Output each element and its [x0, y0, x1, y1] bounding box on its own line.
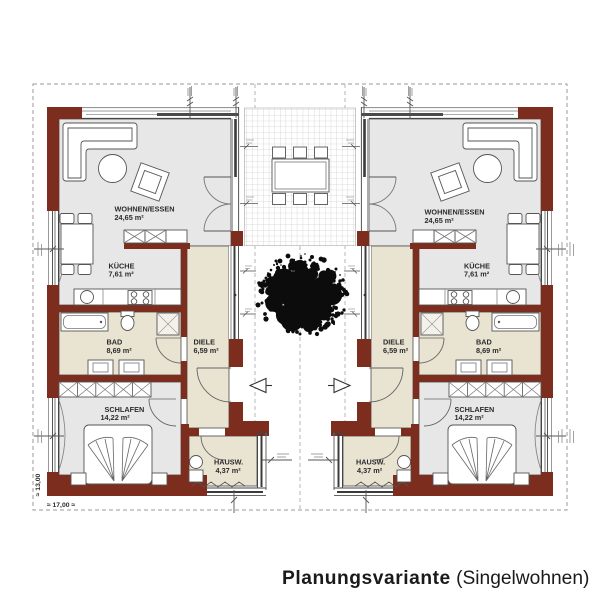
svg-text:24,65 m²: 24,65 m²	[425, 216, 455, 225]
svg-text:4,37 m²: 4,37 m²	[357, 466, 383, 475]
svg-text:≈ 13,00: ≈ 13,00	[35, 473, 42, 496]
svg-text:≈ 17,00 ≈: ≈ 17,00 ≈	[47, 502, 76, 509]
svg-text:24,65 m²: 24,65 m²	[115, 213, 145, 222]
svg-text:8,69 m²: 8,69 m²	[476, 346, 502, 355]
svg-text:7,61 m²: 7,61 m²	[464, 270, 490, 279]
svg-text:8,69 m²: 8,69 m²	[107, 346, 133, 355]
svg-text:6,59 m²: 6,59 m²	[383, 346, 409, 355]
svg-text:6,59 m²: 6,59 m²	[194, 346, 220, 355]
svg-text:4,37 m²: 4,37 m²	[216, 466, 242, 475]
svg-text:14,22 m²: 14,22 m²	[101, 413, 131, 422]
svg-text:14,22 m²: 14,22 m²	[455, 413, 485, 422]
svg-text:Planungsvariante (Singelwohnen: Planungsvariante (Singelwohnen)	[282, 568, 589, 589]
svg-text:7,61 m²: 7,61 m²	[109, 270, 135, 279]
